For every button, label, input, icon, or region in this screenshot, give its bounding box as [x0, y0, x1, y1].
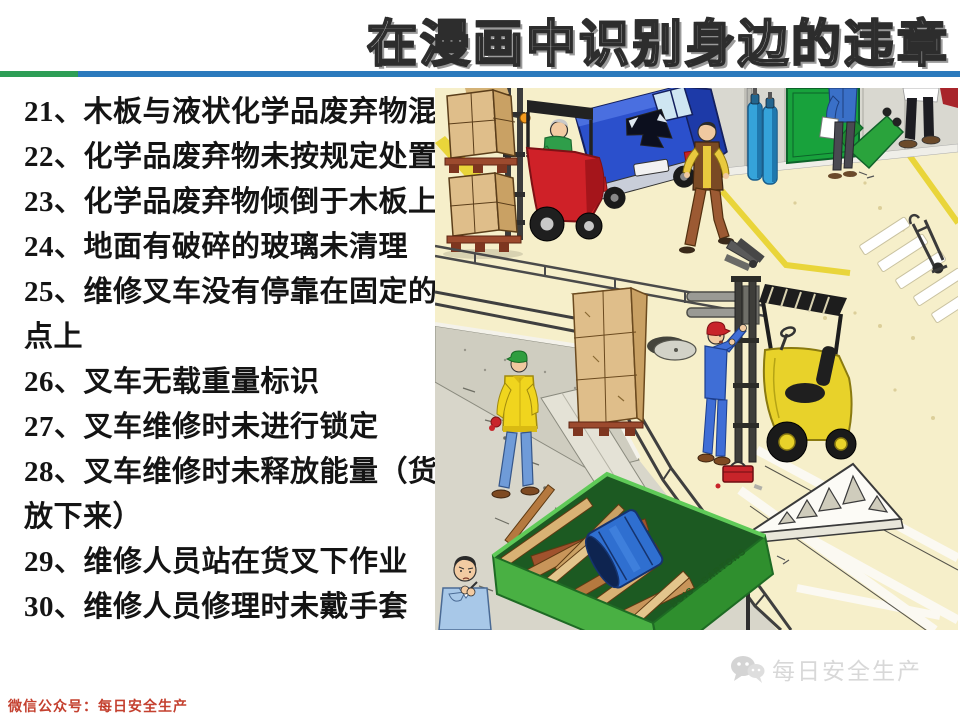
violation-line: 24、地面有破碎的玻璃未清理 — [24, 225, 439, 270]
violation-line: 22、化学品废弃物未按规定处置 — [24, 135, 439, 180]
divider-line — [0, 71, 960, 77]
wechat-account-note: 微信公众号：每日安全生产 — [8, 696, 188, 716]
violation-line: 30、维修人员修理时未戴手套 — [24, 585, 439, 630]
safety-slide: 在漫画中识别身边的违章 21、木板与液状化学品废弃物混放 22、化学品废弃物未按… — [0, 0, 960, 720]
violation-line: 25、维修叉车没有停靠在固定的停车 — [24, 270, 439, 315]
violation-line: 27、叉车维修时未进行锁定 — [24, 405, 439, 450]
divider-green-segment — [0, 71, 78, 77]
violation-list: 21、木板与液状化学品废弃物混放 22、化学品废弃物未按规定处置 23、化学品废… — [24, 90, 439, 630]
violation-line: 21、木板与液状化学品废弃物混放 — [24, 90, 439, 135]
watermark: 每日安全生产 — [730, 652, 922, 686]
violation-line-wrap: 放下来） — [24, 495, 439, 540]
violation-line-wrap: 点上 — [24, 315, 439, 360]
watermark-text: 每日安全生产 — [772, 652, 922, 686]
page-title: 在漫画中识别身边的违章 — [367, 4, 950, 76]
pallet-box-stack — [569, 288, 647, 436]
warehouse-cartoon: BOIS - CARTONS — [435, 88, 958, 630]
violation-line: 23、化学品废弃物倾倒于木板上 — [24, 180, 439, 225]
violation-line: 26、叉车无载重量标识 — [24, 360, 439, 405]
divider-blue-segment — [78, 71, 960, 77]
red-forklift — [503, 88, 604, 241]
violation-line: 29、维修人员站在货叉下作业 — [24, 540, 439, 585]
violation-line: 28、叉车维修时未释放能量（货叉应 — [24, 450, 439, 495]
wechat-bubbles-icon — [730, 654, 766, 684]
